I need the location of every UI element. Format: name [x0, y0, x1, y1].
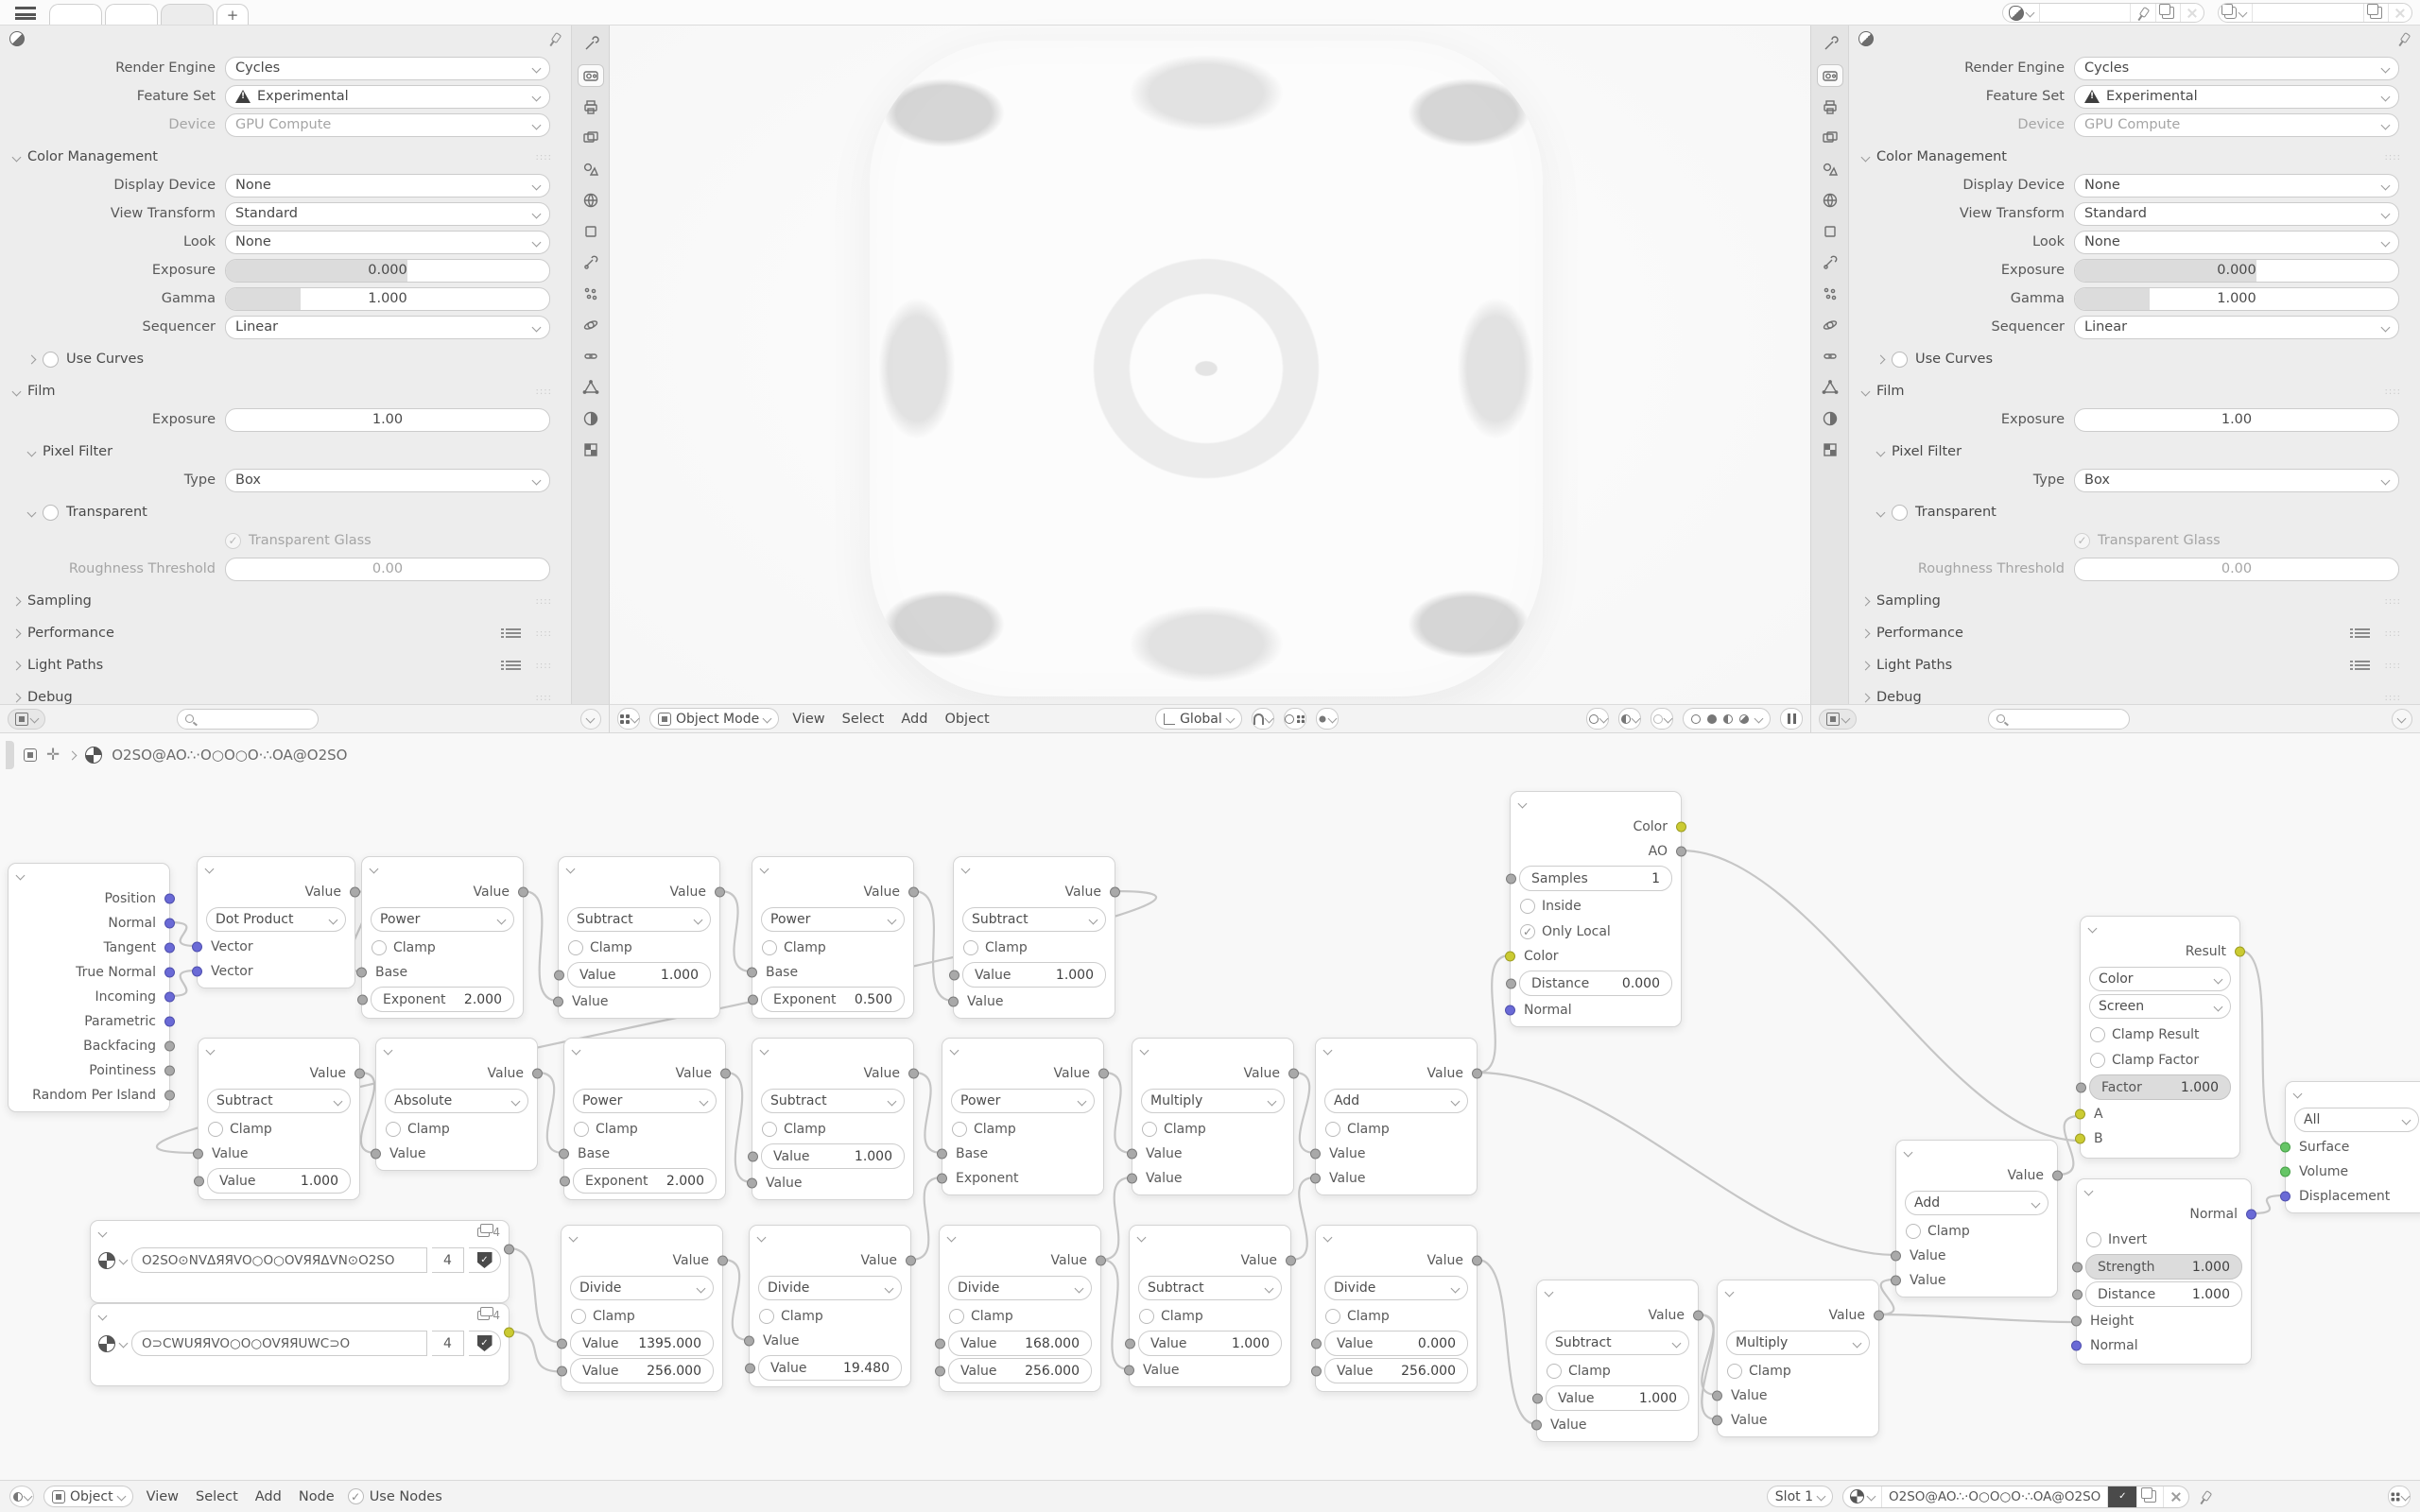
socket-out-backfacing[interactable] [164, 1041, 175, 1052]
scene-name-field[interactable] [2040, 4, 2131, 22]
node-power-1[interactable]: ValuePowerClampBaseExponent2.000 [361, 856, 524, 1019]
socket-in-value[interactable] [1532, 1393, 1543, 1403]
value-field-value[interactable]: Value1395.000 [570, 1331, 714, 1356]
socket-in-value[interactable] [949, 970, 959, 980]
search-input[interactable] [1988, 709, 2130, 730]
node-add-2[interactable]: ValueAddClampValueValue [1895, 1140, 2058, 1297]
checkbox-clamp[interactable]: Clamp [562, 1303, 722, 1329]
checkbox-clamp-factor[interactable]: Clamp Factor [2081, 1047, 2239, 1073]
editor-type-button[interactable] [9, 1486, 34, 1507]
editor-icon[interactable] [1858, 31, 1874, 46]
socket-in-value[interactable] [553, 997, 563, 1007]
node-dot-product[interactable]: ValueDot ProductVectorVector [197, 856, 355, 988]
socket-in-exponent[interactable] [560, 1176, 570, 1186]
checkbox-clamp[interactable]: Clamp [559, 935, 719, 960]
xray-toggle[interactable] [1651, 708, 1673, 730]
socket-in-value[interactable] [935, 1366, 945, 1376]
device-select[interactable]: GPU Compute [2074, 113, 2399, 137]
fake-user-shield-icon[interactable]: ✓ [469, 1331, 501, 1356]
properties-tab-render-icon[interactable] [578, 64, 604, 87]
node-subtract-1[interactable]: ValueSubtractClampValue1.000Value [558, 856, 720, 1019]
value-field-strength[interactable]: Strength1.000 [2085, 1254, 2242, 1280]
socket-out-true-normal[interactable] [164, 968, 175, 978]
fake-user-shield-icon[interactable]: ✓ [2108, 1486, 2137, 1507]
node-subtract-3[interactable]: ValueSubtractClampValueValue1.000 [198, 1038, 360, 1200]
node-divide-3[interactable]: ValueDivideClampValue168.000Value256.000 [939, 1225, 1101, 1392]
socket-in-value[interactable] [1311, 1338, 1322, 1349]
panel-header-performance[interactable]: Performance:::: [1849, 619, 2414, 647]
properties-tab-render-icon[interactable] [1817, 64, 1843, 87]
properties-tab-texture-icon[interactable] [578, 438, 604, 461]
shader-context-select[interactable]: Object [43, 1486, 133, 1507]
user-count[interactable]: 4 [432, 1247, 464, 1273]
socket-out-value[interactable] [2052, 1171, 2063, 1181]
search-input[interactable] [177, 709, 319, 730]
node-subtract-6[interactable]: ValueSubtractClampValue1.000Value [1536, 1280, 1699, 1442]
properties-tab-material-icon[interactable] [578, 407, 604, 430]
shader-node-editor[interactable]: ✛ O2SO@AO∴·O○O○O·∴OA@O2SO PositionNormal… [0, 732, 2420, 1512]
node-absolute[interactable]: ValueAbsoluteClampValue [375, 1038, 538, 1171]
panel-header-color-management[interactable]: Color Management:::: [1849, 143, 2414, 171]
socket-in-value[interactable] [948, 997, 959, 1007]
node-power-2[interactable]: ValuePowerClampBaseExponent0.500 [752, 856, 914, 1019]
socket-out-normal[interactable] [164, 919, 175, 929]
checkbox-clamp[interactable]: Clamp [376, 1116, 537, 1142]
checkbox-clamp[interactable]: Clamp [954, 935, 1115, 960]
copy-material-icon[interactable] [2137, 1486, 2164, 1507]
operation-select[interactable]: Divide [570, 1276, 714, 1300]
socket-in-value[interactable] [1127, 1174, 1137, 1184]
proportional-falloff-select[interactable] [1316, 708, 1339, 730]
node-output[interactable]: AllSurfaceVolumeDisplacement [2285, 1081, 2420, 1213]
value-field-value[interactable]: Value256.000 [1324, 1358, 1468, 1383]
socket-out-position[interactable] [164, 894, 175, 904]
properties-tab-scene-icon[interactable] [578, 158, 604, 180]
exposure-field[interactable]: 1.00 [225, 408, 550, 432]
pin-icon[interactable] [2199, 1490, 2212, 1503]
value-field-value[interactable]: Value1.000 [761, 1143, 905, 1169]
viewport-3d[interactable]: Object Mode View Select Add Object Globa… [610, 26, 1810, 732]
socket-out-value[interactable] [720, 1069, 731, 1079]
socket-out-value[interactable] [1472, 1069, 1482, 1079]
node-divide-4[interactable]: ValueDivideClampValue0.000Value256.000 [1315, 1225, 1478, 1392]
roughness-threshold-field[interactable]: 0.00 [2074, 558, 2399, 581]
remove-view-layer-icon[interactable] [2389, 4, 2411, 22]
socket-out[interactable] [504, 1328, 514, 1338]
socket-out-value[interactable] [350, 887, 360, 898]
socket-in-surface[interactable] [2280, 1143, 2290, 1153]
socket-in-exponent[interactable] [748, 994, 758, 1005]
checkbox-clamp[interactable]: Clamp [752, 935, 913, 960]
operation-select[interactable]: Add [1905, 1191, 2048, 1215]
show-gizmo-toggle[interactable] [1586, 708, 1609, 730]
checkbox-clamp[interactable]: Clamp [750, 1303, 910, 1329]
socket-in-value[interactable] [1125, 1338, 1135, 1349]
checkbox-transparent-glass[interactable]: ✓Transparent Glass [1849, 526, 2414, 555]
operation-select[interactable]: Absolute [385, 1089, 528, 1113]
sequencer-select[interactable]: Linear [2074, 316, 2399, 339]
socket-in-height[interactable] [2071, 1316, 2082, 1327]
node-subtract-2[interactable]: ValueSubtractClampValue1.000Value [953, 856, 1115, 1019]
value-field-value[interactable]: Value19.480 [758, 1355, 902, 1381]
exposure-slider[interactable]: 0.000 [225, 259, 550, 283]
checkbox-clamp-result[interactable]: Clamp Result [2081, 1022, 2239, 1047]
panel-header-film[interactable]: Film:::: [0, 377, 565, 405]
subpanel-header-pixel-filter[interactable]: Pixel Filter [0, 438, 565, 466]
node-multiply-2[interactable]: ValueMultiplyClampValueValue [1717, 1280, 1879, 1437]
editor-options-button[interactable] [2388, 1486, 2411, 1507]
socket-out-value[interactable] [1288, 1069, 1299, 1079]
operation-select[interactable]: Color [2089, 967, 2231, 991]
socket-out-value[interactable] [518, 887, 528, 898]
checkbox-inside[interactable]: Inside [1511, 893, 1681, 919]
socket-in-value[interactable] [557, 1338, 567, 1349]
sidebar-toggle[interactable] [6, 741, 14, 769]
render-engine-select[interactable]: Cycles [225, 57, 550, 80]
socket-in-normal[interactable] [1505, 1005, 1515, 1016]
view-transform-select[interactable]: Standard [2074, 202, 2399, 226]
properties-tab-world-icon[interactable] [1817, 189, 1843, 212]
look-select[interactable]: None [2074, 231, 2399, 254]
material-slot-select[interactable]: Slot 1 [1767, 1486, 1833, 1507]
operation-select[interactable]: Subtract [1546, 1331, 1689, 1355]
material-name-field[interactable]: O2SO@AO∴·O○O○O·∴OA@O2SO [1882, 1486, 2108, 1507]
socket-out-value[interactable] [906, 1256, 916, 1266]
shading-material-icon[interactable] [1723, 714, 1733, 724]
socket-in-value[interactable] [747, 1178, 757, 1189]
use-nodes-checkbox[interactable]: ✓Use Nodes [348, 1488, 442, 1504]
editor-icon[interactable] [9, 31, 25, 46]
operation-select[interactable]: Dot Product [206, 907, 346, 932]
socket-in-exponent[interactable] [357, 994, 368, 1005]
socket-in-value[interactable] [1127, 1149, 1137, 1160]
value-field-value[interactable]: Value1.000 [1546, 1385, 1689, 1411]
node-power-4[interactable]: ValuePowerClampBaseExponent [942, 1038, 1104, 1195]
shading-solid-icon[interactable] [1707, 714, 1717, 724]
workspace-tab-2[interactable] [105, 4, 158, 25]
panel-header-sampling[interactable]: Sampling:::: [1849, 587, 2414, 615]
socket-in-value[interactable] [1124, 1366, 1134, 1376]
panel-header-light-paths[interactable]: Light Paths:::: [1849, 651, 2414, 679]
user-count[interactable]: 4 [432, 1331, 464, 1356]
menu-select[interactable]: Select [192, 1489, 242, 1504]
menu-node[interactable]: Node [295, 1489, 338, 1504]
value-field-exponent[interactable]: Exponent2.000 [371, 987, 514, 1012]
checkbox-clamp[interactable]: Clamp [1316, 1116, 1477, 1142]
scene-icon[interactable] [2003, 4, 2040, 22]
panel-header-debug[interactable]: Debug:::: [0, 683, 565, 704]
menu-add[interactable]: Add [251, 1489, 285, 1504]
socket-in-value[interactable] [1712, 1391, 1722, 1401]
operation-select[interactable]: Divide [758, 1276, 902, 1300]
socket-in-exponent[interactable] [937, 1174, 947, 1184]
socket-out-value[interactable] [908, 1069, 919, 1079]
checkbox-clamp[interactable]: Clamp [942, 1116, 1103, 1142]
value-field-exponent[interactable]: Exponent2.000 [573, 1168, 717, 1194]
node-divide-1[interactable]: ValueDivideClampValue1395.000Value256.00… [561, 1225, 723, 1392]
socket-in-value[interactable] [193, 1149, 203, 1160]
properties-tab-viewlayer-icon[interactable] [578, 127, 604, 149]
socket-in-value[interactable] [744, 1336, 754, 1347]
texture-icon[interactable] [98, 1335, 115, 1352]
socket-out-value[interactable] [354, 1069, 365, 1079]
node-geometry[interactable]: PositionNormalTangentTrue NormalIncoming… [8, 863, 170, 1112]
checkbox-clamp[interactable]: Clamp [1132, 1116, 1293, 1142]
properties-tab-viewlayer-icon[interactable] [1817, 127, 1843, 149]
shading-rendered-icon[interactable] [1739, 714, 1749, 724]
socket-out-value[interactable] [1096, 1256, 1106, 1266]
socket-in-value[interactable] [748, 1151, 758, 1161]
socket-in-samples[interactable] [1506, 873, 1516, 884]
operation-select[interactable]: Subtract [761, 1089, 905, 1113]
operation-select[interactable]: Subtract [1138, 1276, 1282, 1300]
properties-tab-tool-icon[interactable] [1817, 33, 1843, 56]
properties-tab-data-icon[interactable] [1817, 376, 1843, 399]
menu-add[interactable]: Add [897, 712, 931, 727]
socket-out-tangent[interactable] [164, 943, 175, 954]
checkbox-clamp[interactable]: Clamp [752, 1116, 913, 1142]
feature-set-select[interactable]: Experimental [225, 85, 550, 109]
device-select[interactable]: GPU Compute [225, 113, 550, 137]
menu-select[interactable]: Select [838, 712, 889, 727]
node-bump[interactable]: NormalInvertStrength1.000Distance1.000He… [2076, 1178, 2252, 1365]
panel-header-color-management[interactable]: Color Management:::: [0, 143, 565, 171]
panel-options-button[interactable] [580, 709, 601, 730]
snap-toggle[interactable] [1252, 708, 1274, 730]
checkbox-clamp[interactable]: Clamp [199, 1116, 359, 1142]
properties-tab-tool-icon[interactable] [578, 33, 604, 56]
socket-out-value[interactable] [1110, 887, 1120, 898]
node-add-1[interactable]: ValueAddClampValueValue [1315, 1038, 1478, 1195]
subpanel-header-pixel-filter[interactable]: Pixel Filter [1849, 438, 2414, 466]
node-subtract-5[interactable]: ValueSubtractClampValue1.000Value [1129, 1225, 1291, 1387]
node-power-3[interactable]: ValuePowerClampBaseExponent2.000 [563, 1038, 726, 1200]
fake-user-shield-icon[interactable]: ✓ [469, 1247, 501, 1273]
subpanel-header-transparent[interactable]: Transparent [1849, 498, 2414, 526]
value-field-value[interactable]: Value1.000 [567, 962, 711, 988]
checkbox-only-local[interactable]: ✓Only Local [1511, 919, 1681, 944]
operation-select[interactable]: Divide [948, 1276, 1092, 1300]
workspace-tab-1[interactable] [49, 4, 102, 25]
look-select[interactable]: None [225, 231, 550, 254]
value-field-samples[interactable]: Samples1 [1519, 866, 1672, 891]
pin-icon[interactable] [2397, 32, 2411, 45]
socket-out-value[interactable] [1286, 1256, 1296, 1266]
socket-in-value[interactable] [371, 1149, 381, 1160]
material-browse-icon[interactable] [1843, 1486, 1882, 1507]
menu-view[interactable]: View [143, 1489, 182, 1504]
socket-out-value[interactable] [1874, 1311, 1884, 1321]
value-field-value[interactable]: Value0.000 [1324, 1331, 1468, 1356]
editor-type-button[interactable] [1819, 709, 1857, 730]
operation-select[interactable]: Screen [2089, 994, 2231, 1019]
exposure-field[interactable]: 1.00 [2074, 408, 2399, 432]
app-menu-icon[interactable] [15, 7, 36, 20]
pin-icon[interactable] [548, 32, 562, 45]
node-noise-2[interactable]: 4O⊃CWUЯЯVO○O○OVЯЯUWC⊃O4✓ [90, 1303, 510, 1386]
editor-type-button[interactable] [617, 708, 640, 730]
panel-header-light-paths[interactable]: Light Paths:::: [0, 651, 565, 679]
gamma-slider[interactable]: 1.000 [2074, 287, 2399, 311]
properties-tab-material-icon[interactable] [1817, 407, 1843, 430]
socket-out-parametric[interactable] [164, 1017, 175, 1027]
value-field-value[interactable]: Value1.000 [962, 962, 1106, 988]
socket-in-volume[interactable] [2280, 1167, 2290, 1177]
value-field-value[interactable]: Value256.000 [948, 1358, 1092, 1383]
properties-tab-object-icon[interactable] [1817, 220, 1843, 243]
shading-wireframe-icon[interactable] [1691, 714, 1701, 724]
properties-tab-output-icon[interactable] [578, 95, 604, 118]
properties-tab-particles-icon[interactable] [1817, 283, 1843, 305]
socket-in-distance[interactable] [1506, 978, 1516, 988]
socket-in-base[interactable] [559, 1149, 569, 1160]
socket-in-displacement[interactable] [2280, 1192, 2290, 1202]
operation-select[interactable]: Multiply [1726, 1331, 1870, 1355]
socket-in-color[interactable] [1505, 952, 1515, 962]
workspace-tab-3-active[interactable] [161, 4, 214, 25]
view-layer-icon[interactable] [2219, 4, 2253, 22]
panel-header-sampling[interactable]: Sampling:::: [0, 587, 565, 615]
display-device-select[interactable]: None [225, 174, 550, 198]
panel-header-use-curves[interactable]: Use Curves [0, 345, 565, 373]
panel-options-button[interactable] [2392, 709, 2412, 730]
socket-in-value[interactable] [194, 1176, 204, 1186]
exposure-slider[interactable]: 0.000 [2074, 259, 2399, 283]
operation-select[interactable]: Add [1324, 1089, 1468, 1113]
socket-out-normal[interactable] [2246, 1210, 2256, 1220]
properties-tab-particles-icon[interactable] [578, 283, 604, 305]
value-field-value[interactable]: Value1.000 [1138, 1331, 1282, 1356]
node-divide-2[interactable]: ValueDivideClampValueValue19.480 [749, 1225, 911, 1387]
checkbox-transparent-glass[interactable]: ✓Transparent Glass [0, 526, 565, 555]
socket-out-result[interactable] [2235, 947, 2245, 957]
checkbox-clamp[interactable]: Clamp [564, 1116, 725, 1142]
type-select[interactable]: Box [225, 469, 550, 492]
operation-select[interactable]: Power [371, 907, 514, 932]
datablock-name-field[interactable]: O⊃CWUЯЯVO○O○OVЯЯUWC⊃O [131, 1331, 427, 1356]
socket-out-random-per-island[interactable] [164, 1091, 175, 1101]
socket-in-value[interactable] [1891, 1276, 1901, 1286]
socket-out-color[interactable] [1676, 822, 1686, 833]
socket-in-factor[interactable] [2076, 1082, 2086, 1092]
socket-in-value[interactable] [1310, 1174, 1321, 1184]
properties-tab-texture-icon[interactable] [1817, 438, 1843, 461]
properties-tab-constraints-icon[interactable] [1817, 345, 1843, 368]
operation-select[interactable]: Divide [1324, 1276, 1468, 1300]
socket-out-value[interactable] [1472, 1256, 1482, 1266]
viewport-object[interactable] [870, 41, 1543, 696]
value-field-value[interactable]: Value1.000 [207, 1168, 351, 1194]
socket-out-value[interactable] [715, 887, 725, 898]
gamma-slider[interactable]: 1.000 [225, 287, 550, 311]
menu-object[interactable]: Object [941, 712, 993, 727]
properties-tab-scene-icon[interactable] [1817, 158, 1843, 180]
panel-header-use-curves[interactable]: Use Curves [1849, 345, 2414, 373]
properties-tab-data-icon[interactable] [578, 376, 604, 399]
checkbox-clamp[interactable]: Clamp [1718, 1358, 1878, 1383]
node-multiply-1[interactable]: ValueMultiplyClampValueValue [1132, 1038, 1294, 1195]
node-mix[interactable]: ResultColorScreenClamp ResultClamp Facto… [2080, 916, 2240, 1159]
socket-out-value[interactable] [908, 887, 919, 898]
mode-select[interactable]: Object Mode [649, 708, 779, 730]
socket-in-normal[interactable] [2071, 1341, 2082, 1351]
datablock-name-field[interactable]: O2SO⊙NVΔЯЯVO○O○OVЯЯΔVN⊙O2SO [131, 1247, 427, 1273]
socket-in-value[interactable] [554, 970, 564, 980]
properties-tab-physics-icon[interactable] [578, 314, 604, 336]
properties-tab-modifiers-icon[interactable] [1817, 251, 1843, 274]
view-transform-select[interactable]: Standard [225, 202, 550, 226]
socket-in-value[interactable] [1891, 1251, 1901, 1262]
socket-in-vector[interactable] [192, 942, 202, 953]
operation-select[interactable]: Power [573, 1089, 717, 1113]
value-field-exponent[interactable]: Exponent0.500 [761, 987, 905, 1012]
socket-out-pointiness[interactable] [164, 1066, 175, 1076]
panel-header-film[interactable]: Film:::: [1849, 377, 2414, 405]
operation-select[interactable]: Subtract [207, 1089, 351, 1113]
sequencer-select[interactable]: Linear [225, 316, 550, 339]
render-engine-select[interactable]: Cycles [2074, 57, 2399, 80]
node-ao[interactable]: ColorAOSamples1Inside✓Only LocalColorDis… [1510, 791, 1682, 1027]
socket-out-value[interactable] [532, 1069, 543, 1079]
socket-in-distance[interactable] [2072, 1289, 2083, 1299]
socket-out[interactable] [504, 1245, 514, 1255]
socket-in-value[interactable] [1311, 1366, 1322, 1376]
operation-select[interactable]: All [2294, 1108, 2419, 1132]
operation-select[interactable]: Power [761, 907, 905, 932]
unlink-material-icon[interactable] [2164, 1486, 2188, 1507]
checkbox-clamp[interactable]: Clamp [362, 935, 523, 960]
value-field-value[interactable]: Value256.000 [570, 1358, 714, 1383]
transform-orientation-select[interactable]: Global [1155, 708, 1242, 730]
show-overlays-toggle[interactable] [1618, 708, 1641, 730]
socket-in-base[interactable] [747, 968, 757, 978]
socket-in-base[interactable] [937, 1149, 947, 1160]
socket-in-value[interactable] [745, 1363, 755, 1373]
socket-out-value[interactable] [1098, 1069, 1109, 1079]
socket-in-value[interactable] [1531, 1420, 1542, 1431]
checkbox-clamp[interactable]: Clamp [1316, 1303, 1477, 1329]
pause-button[interactable] [1780, 708, 1803, 730]
operation-select[interactable]: Power [951, 1089, 1095, 1113]
value-field-distance[interactable]: Distance1.000 [2085, 1281, 2242, 1307]
subpanel-header-transparent[interactable]: Transparent [0, 498, 565, 526]
operation-select[interactable]: Multiply [1141, 1089, 1285, 1113]
checkbox-clamp[interactable]: Clamp [940, 1303, 1100, 1329]
roughness-threshold-field[interactable]: 0.00 [225, 558, 550, 581]
socket-in-a[interactable] [2075, 1109, 2085, 1120]
editor-type-button[interactable] [8, 709, 45, 730]
texture-icon[interactable] [98, 1252, 115, 1269]
socket-in-value[interactable] [1310, 1149, 1321, 1160]
socket-in-b[interactable] [2075, 1134, 2085, 1144]
value-field-value[interactable]: Value168.000 [948, 1331, 1092, 1356]
proportional-edit-toggle[interactable] [1284, 708, 1306, 730]
panel-header-performance[interactable]: Performance:::: [0, 619, 565, 647]
properties-tab-physics-icon[interactable] [1817, 314, 1843, 336]
socket-in-base[interactable] [356, 968, 367, 978]
node-canvas[interactable]: PositionNormalTangentTrue NormalIncoming… [0, 733, 2420, 1481]
socket-in-value[interactable] [557, 1366, 567, 1376]
socket-out-incoming[interactable] [164, 992, 175, 1003]
view-layer-name-field[interactable] [2253, 4, 2364, 22]
socket-out-value[interactable] [717, 1256, 728, 1266]
display-device-select[interactable]: None [2074, 174, 2399, 198]
type-select[interactable]: Box [2074, 469, 2399, 492]
operation-select[interactable]: Subtract [962, 907, 1106, 932]
checkbox-invert[interactable]: Invert [2077, 1227, 2251, 1252]
properties-tab-world-icon[interactable] [578, 189, 604, 212]
value-field-distance[interactable]: Distance0.000 [1519, 971, 1672, 996]
